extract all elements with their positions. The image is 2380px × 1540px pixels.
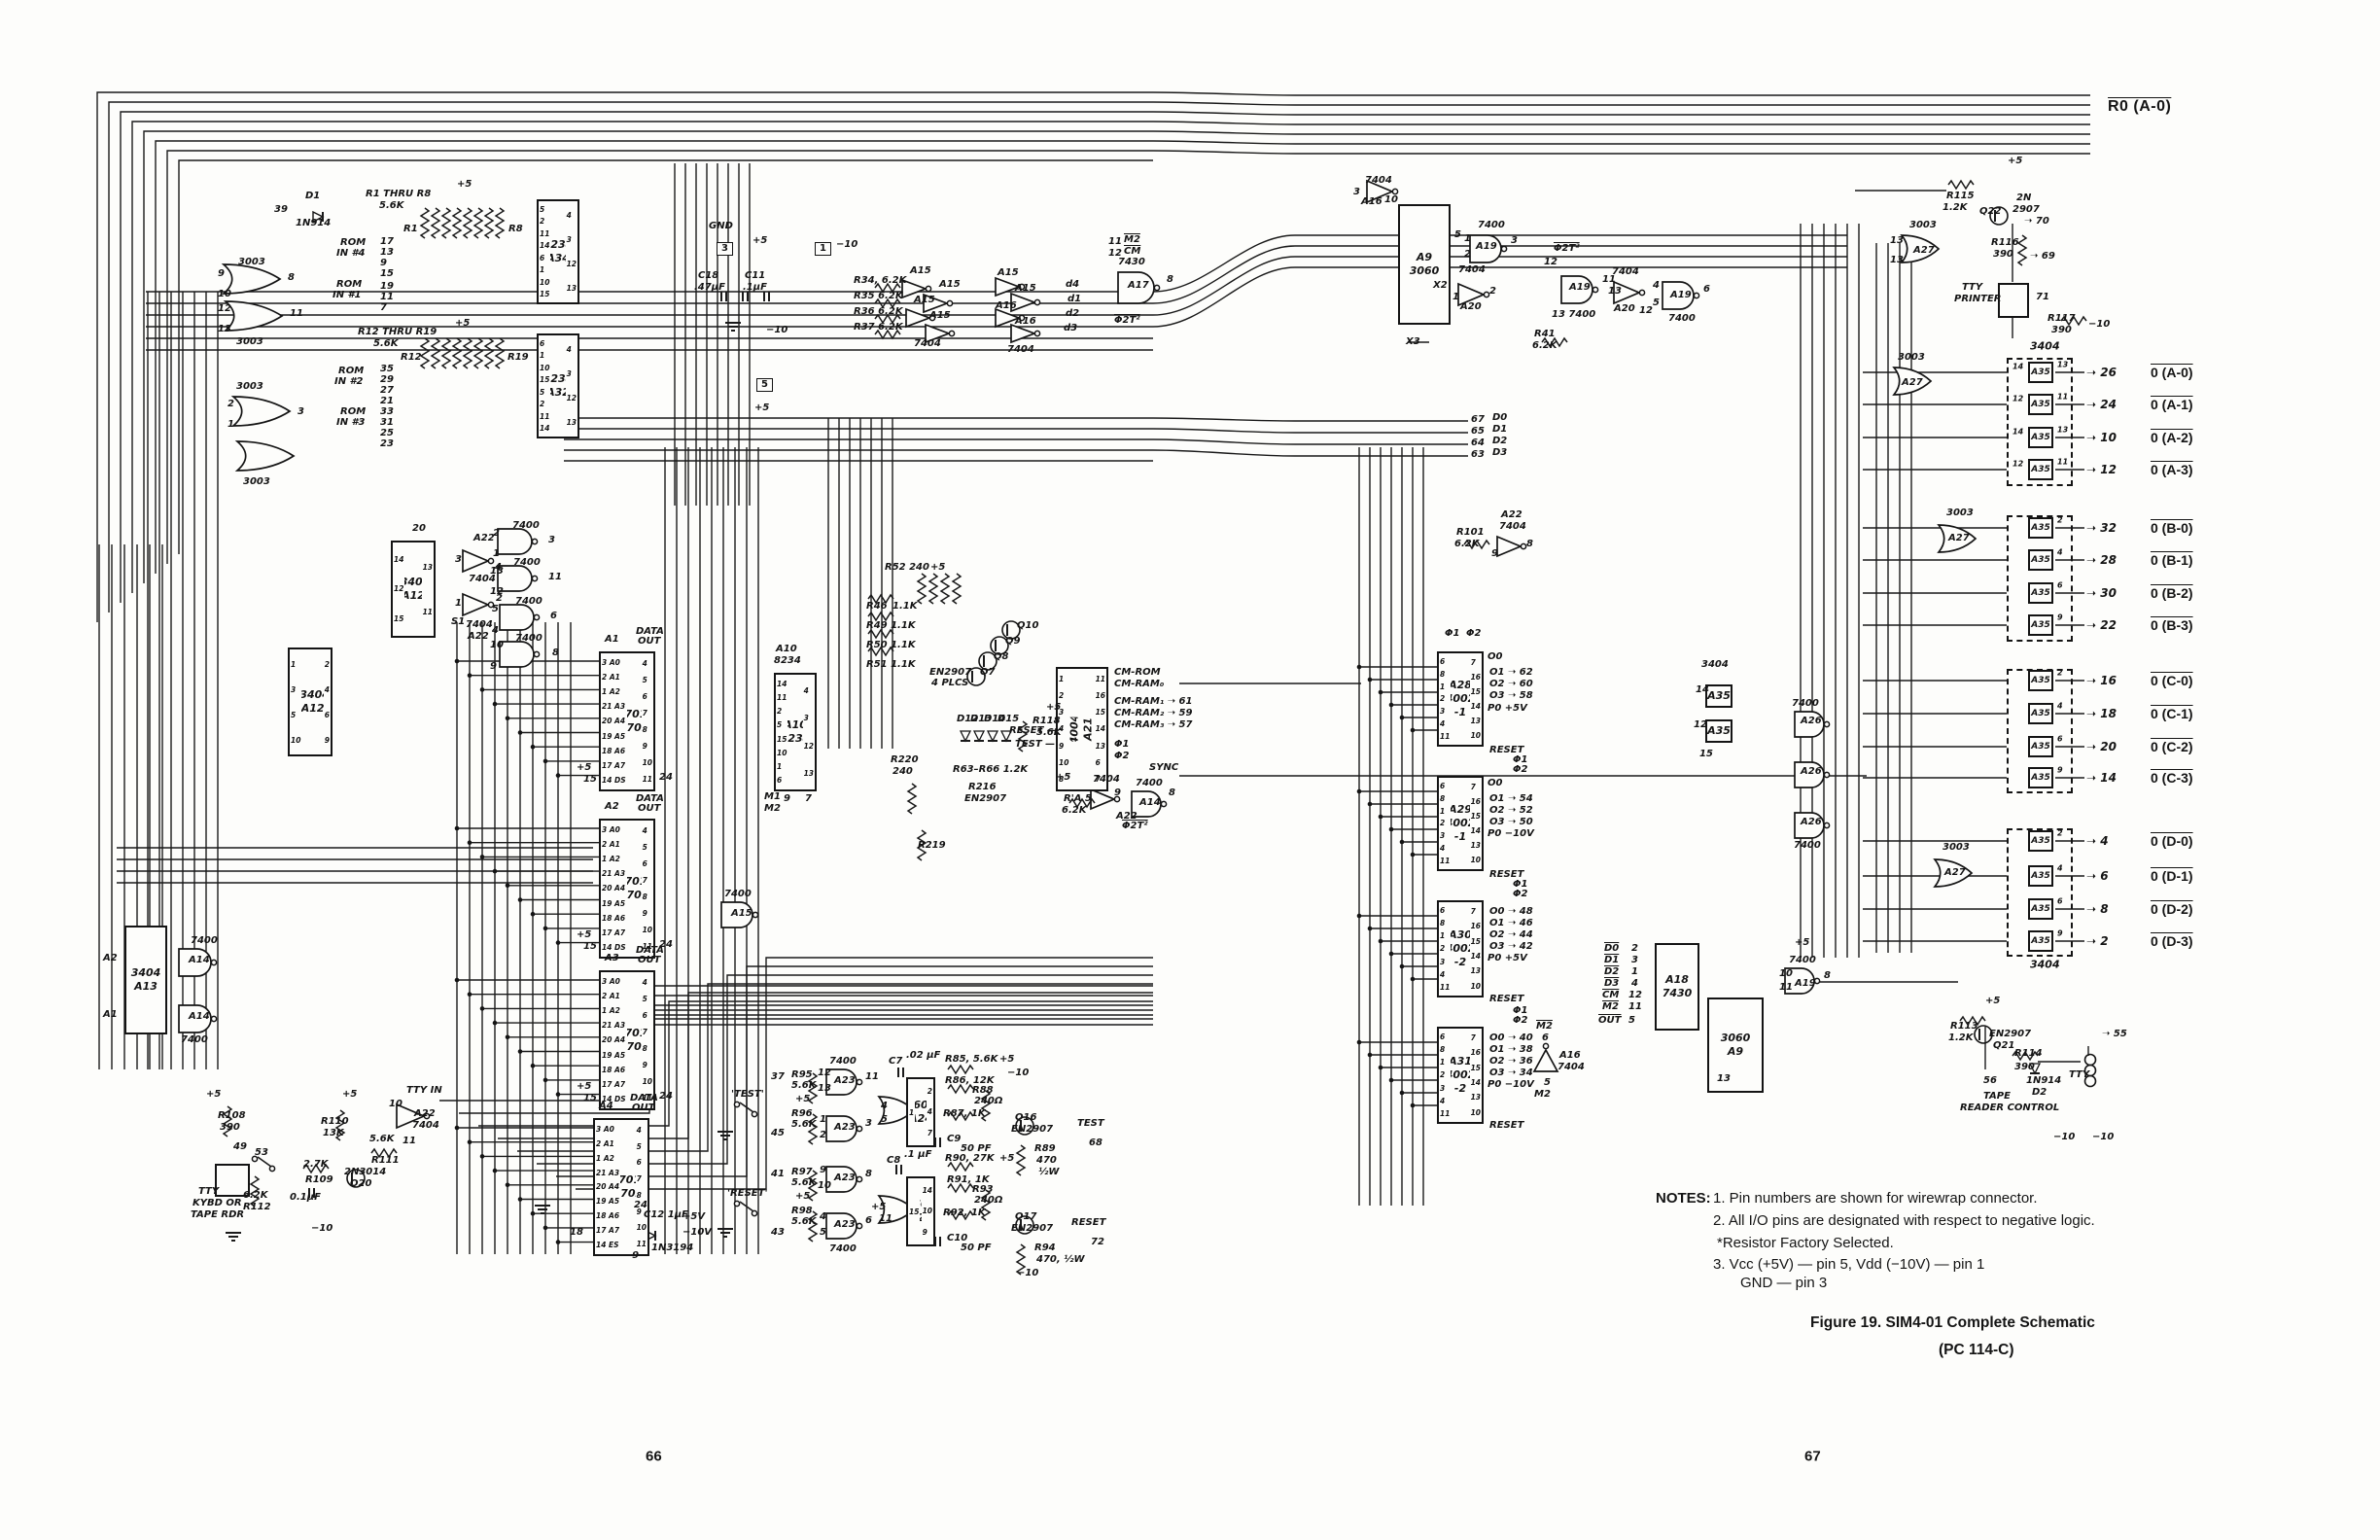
ic-designator: I3404A12 [301, 649, 323, 754]
ic-designator: I3404A12 [404, 542, 421, 636]
output-signal-label: 0 (A-3) [2151, 462, 2193, 477]
schematic-label: R114 [2014, 1049, 2043, 1059]
schematic-label: 12 [1544, 258, 1557, 267]
schematic-label: ➝ 55 [2102, 1030, 2127, 1039]
schematic-label: −10V [682, 1228, 712, 1238]
schematic-label: O2 ➝ 52 [1489, 806, 1533, 816]
schematic-label: −10 [2053, 1133, 2075, 1142]
schematic-label: 10 [818, 1181, 831, 1191]
schematic-label: −10 [836, 240, 857, 250]
buffer-output-pin: 6 [2057, 581, 2063, 590]
schematic-label: D2 [1604, 967, 1619, 977]
schematic-label: 3003 [238, 258, 265, 267]
schematic-label: 45 [771, 1129, 785, 1138]
schematic-label: d4 [1066, 280, 1079, 290]
schematic-label: R220 [891, 755, 919, 765]
schematic-label: A17 [1128, 281, 1149, 291]
buffer-cell: A35 [2028, 930, 2053, 952]
schematic-label: 11 [548, 573, 562, 582]
schematic-label: Φ2 [1513, 765, 1527, 775]
schematic-label: .47μF [694, 283, 725, 293]
schematic-label: 50 PF [961, 1243, 992, 1253]
buffer-input-pin: 12 [2012, 395, 2023, 403]
schematic-label: TTY [198, 1187, 219, 1197]
schematic-label: 39 [274, 205, 288, 215]
schematic-label: D2 [2032, 1088, 2047, 1098]
ic-a31-4002--2: 68123411A314002-271615141310 [1437, 1027, 1484, 1124]
schematic-label: 6.2K [243, 1191, 267, 1201]
buffer-cell: A35 [2028, 703, 2053, 724]
schematic-label: 35 [380, 365, 394, 374]
ic-designator: A304002-2 [1451, 902, 1469, 996]
schematic-label: O2 ➝ 44 [1489, 930, 1533, 940]
schematic-label: 390 [2014, 1063, 2035, 1072]
schematic-label: R37 6.2K [854, 323, 903, 332]
schematic-label: 24 [659, 1092, 673, 1102]
schematic-label: 15 [1699, 750, 1713, 759]
pin-numbers-right: 71615141310 [1470, 653, 1482, 745]
schematic-label: +5V [682, 1212, 705, 1222]
schematic-label: O2 ➝ 36 [1489, 1057, 1533, 1067]
note-line: *Resistor Factory Selected. [1717, 1235, 1894, 1251]
page-number-right: 67 [1804, 1449, 1821, 1465]
schematic-label: R46 [866, 602, 888, 612]
schematic-label: EN2907 [1989, 1030, 2031, 1039]
schematic-label: O3 ➝ 50 [1489, 818, 1533, 827]
pin-numbers-right: 431213 [566, 335, 577, 437]
schematic-label: 8 [1167, 275, 1173, 285]
schematic-label: 11 [290, 309, 303, 319]
connector-pin-label: ➝ 10 [2086, 431, 2117, 444]
schematic-label: IN #3 [336, 418, 366, 428]
schematic-label: 3 [1511, 236, 1518, 246]
schematic-label: 6 [865, 1216, 872, 1226]
schematic-label: O1 ➝ 54 [1489, 794, 1533, 804]
schematic-label: 5.6K [369, 1135, 394, 1144]
schematic-label: A15 [731, 909, 752, 919]
schematic-label: R1 THRU R8 [366, 190, 431, 199]
schematic-label: OUT [632, 1103, 654, 1113]
schematic-label: 9 [490, 662, 497, 672]
ic-designator: A93060 [1400, 206, 1449, 323]
schematic-label: Φ2T² [1114, 316, 1140, 326]
schematic-label: READER CONTROL [1960, 1103, 2059, 1113]
schematic-label: A20 [1460, 302, 1482, 312]
schematic-label: X2 [1433, 281, 1448, 291]
schematic-label: M2 [764, 804, 781, 814]
schematic-label: 7400 [829, 1244, 857, 1254]
schematic-label: 2.7K [303, 1160, 328, 1170]
output-signal-label: 0 (D-2) [2151, 901, 2193, 917]
schematic-label: RESET — [1009, 726, 1057, 736]
output-signal-label: 0 (D-3) [2151, 933, 2193, 949]
buffer-output-pin: 11 [2057, 458, 2068, 467]
ic-designator: 1701/1702 [620, 1120, 635, 1254]
schematic-label: O0 ➝ 48 [1489, 907, 1533, 917]
schematic-label: 9 [1114, 788, 1121, 798]
schematic-label: A16 [1559, 1051, 1581, 1061]
schematic-label: O1 ➝ 62 [1489, 668, 1533, 678]
ic-3060-a9: 3060A9 [1707, 997, 1764, 1093]
ic-8234-a32: 6110155211148234A32431213 [537, 333, 579, 438]
schematic-label: R12 THRU R19 [358, 328, 437, 337]
schematic-label: A26 [1801, 818, 1822, 827]
output-signal-label: 0 (A-0) [2151, 365, 2193, 380]
buffer-cell: A35 [2028, 582, 2053, 604]
schematic-label: 7400 [829, 1057, 857, 1067]
schematic-label: 7404 [1612, 267, 1639, 277]
schematic-label: −10 [1017, 1269, 1038, 1278]
schematic-label: +5 [754, 403, 769, 413]
schematic-label: 29 [380, 375, 394, 385]
schematic-label: R19 [507, 353, 529, 363]
schematic-label: O0 [1487, 779, 1502, 788]
buffer-output-pin: 13 [2057, 426, 2068, 435]
schematic-label: 7400 [515, 634, 542, 644]
schematic-label: 25 [380, 429, 394, 438]
ic-designator: 8234A32 [550, 335, 565, 437]
output-signal-label: 0 (B-0) [2151, 520, 2193, 536]
ic-designator: 1701/1702 [627, 821, 642, 957]
schematic-label: A19 [1795, 979, 1816, 989]
schematic-label: R51 1.1K [866, 660, 916, 670]
schematic-label: R52 240 [885, 563, 929, 573]
ic-1701-1702: 3 A02 A11 A221 A320 A419 A518 A617 A714 … [599, 651, 655, 791]
schematic-label: 6.2K [1532, 341, 1557, 351]
ic-a28-4002--1: 68123411A284002-171615141310 [1437, 651, 1484, 747]
schematic-label: CM-ROM [1114, 668, 1161, 678]
note-line: GND — pin 3 [1740, 1275, 1827, 1291]
schematic-label: 7404 [1557, 1063, 1585, 1072]
schematic-label: 12 [1694, 720, 1707, 730]
schematic-label: A22 [1501, 510, 1522, 520]
schematic-label: +5 [577, 1082, 591, 1092]
schematic-label: 5 [492, 605, 499, 614]
schematic-label: 1.2K [1948, 1033, 1973, 1043]
pin-numbers-left: 3 A02 A11 A221 A320 A419 A518 A617 A714 … [601, 653, 627, 789]
schematic-label: 2N [2016, 193, 2031, 203]
schematic-label: Q16 [1015, 1113, 1036, 1123]
schematic-label: 12 [818, 1068, 831, 1078]
schematic-label: R92, 1K [943, 1208, 986, 1218]
schematic-label: 5 [881, 1115, 888, 1125]
schematic-label: A14 [189, 956, 210, 965]
pin-numbers-left: 15 [908, 1178, 920, 1244]
schematic-label: 2 [820, 1131, 826, 1140]
schematic-label: d2 [1066, 309, 1079, 319]
pin-numbers-right: 71615141310 [1470, 902, 1482, 996]
schematic-label: +5 [1056, 773, 1070, 783]
schematic-label: 33 [380, 407, 394, 417]
connector-pin-label: ➝ 32 [2086, 521, 2117, 535]
buffer-output-pin: 4 [2057, 864, 2063, 873]
schematic-label: 3 [1631, 956, 1638, 965]
schematic-label: Q7 [980, 668, 995, 678]
schematic-label: A15 [910, 266, 931, 276]
schematic-label: A27 [1944, 868, 1966, 878]
schematic-label: +5 [930, 563, 945, 573]
schematic-label: 65 [1471, 427, 1485, 437]
buffer-cell: A35 [2028, 898, 2053, 920]
buffer-cell: A35 [2028, 865, 2053, 887]
schematic-label: A22 [473, 534, 495, 543]
schematic-label: 470, ½W [1036, 1255, 1085, 1265]
schematic-label: D2 [1492, 437, 1507, 446]
pin-numbers-right: 4567891011 [642, 972, 653, 1108]
schematic-label: 7404 [1499, 522, 1526, 532]
connector-pin-label: ➝ 4 [2086, 834, 2109, 848]
schematic-label: +5 [455, 319, 470, 329]
schematic-label: R117 [2047, 314, 2076, 324]
schematic-label: 5.6K [791, 1081, 816, 1091]
connector-pin-label: ➝ 8 [2086, 902, 2109, 916]
schematic-label: 11 [1628, 1002, 1642, 1012]
pin-numbers-right: 71615141310 [1470, 778, 1482, 869]
schematic-label: 240Ω [974, 1196, 1002, 1206]
schematic-label: 9 [820, 1166, 826, 1175]
schematic-label: Q20 [350, 1179, 371, 1189]
ic-a35: A35 [1705, 719, 1732, 743]
schematic-label: 49 [233, 1142, 247, 1152]
schematic-label: ➝ 69 [2030, 252, 2055, 262]
schematic-label: 7400 [512, 521, 540, 531]
schematic-label: OUT [638, 956, 660, 965]
schematic-label: R111 [371, 1156, 400, 1166]
schematic-label: R50 1.1K [866, 641, 916, 650]
schematic-label: 7 [805, 794, 812, 804]
schematic-label: R98 [791, 1207, 813, 1216]
schematic-label: EN2907 [1011, 1224, 1053, 1234]
schematic-label: 17 [380, 237, 394, 247]
figure-caption-title: Figure 19. SIM4-01 Complete Schematic [1810, 1314, 2095, 1332]
ic-a9-3060: A93060 [1398, 204, 1451, 325]
schematic-label: 5 [1544, 1078, 1551, 1088]
buffer-cell: A35 [2028, 670, 2053, 691]
schematic-label: 10 [218, 290, 231, 299]
schematic-label: R88 [972, 1086, 994, 1096]
schematic-label: 19 [380, 282, 394, 292]
buffer-group-part-label: 3404 [2030, 960, 2060, 970]
notes-heading: NOTES: [1656, 1190, 1711, 1207]
schematic-label: Φ2T² [1554, 244, 1580, 254]
schematic-label: .02 μF [906, 1051, 940, 1061]
schematic-label: A23 [834, 1076, 856, 1086]
connector-pin-label: ➝ 6 [2086, 869, 2109, 883]
pin-numbers-right: 247 [927, 1079, 933, 1145]
schematic-label: 67 [1471, 415, 1485, 425]
schematic-label: D15 [997, 715, 1019, 724]
schematic-label: 10 [490, 641, 504, 650]
schematic-label: 3003 [1898, 353, 1925, 363]
schematic-label: 3003 [1946, 508, 1974, 518]
schematic-label: R110 [321, 1117, 349, 1127]
schematic-label: A19 [1670, 291, 1692, 300]
output-signal-label: 0 (C-2) [2151, 739, 2193, 754]
schematic-label: D0 [1604, 944, 1619, 954]
schematic-label: A15 [929, 311, 951, 321]
buffer-cell: A35 [2028, 736, 2053, 757]
schematic-label: O1 ➝ 38 [1489, 1045, 1533, 1055]
schematic-label: 2 [1464, 250, 1471, 260]
schematic-label: 8 [552, 648, 559, 658]
schematic-label: A22 [468, 632, 489, 642]
schematic-label: ROM [340, 238, 366, 248]
pin-numbers-right: 4567891011 [642, 653, 653, 789]
schematic-label: EN2907 [964, 794, 1006, 804]
ic-9602-a24: 19602A24247 [906, 1077, 935, 1147]
pin-numbers-left: 521114611015 [539, 201, 550, 302]
schematic-label: 3003 [236, 382, 263, 392]
schematic-label: 4 [1653, 281, 1660, 291]
schematic-label: 8 [1526, 540, 1533, 549]
schematic-label: O3 ➝ 42 [1489, 942, 1533, 952]
schematic-label: OUT [1598, 1016, 1621, 1026]
schematic-label: 7400 [1668, 314, 1696, 324]
pin-numbers-right: 4567891011 [636, 1120, 647, 1254]
schematic-label: 7400 [1136, 779, 1163, 788]
pin-numbers-right: 2469 [324, 649, 331, 754]
schematic-label: A27 [1948, 534, 1970, 543]
schematic-label: 2N3014 [344, 1168, 386, 1177]
schematic-label: 7404 [466, 620, 493, 630]
schematic-label: 'TEST' [731, 1090, 764, 1100]
connector-pin-label: ➝ 24 [2086, 398, 2117, 411]
schematic-label: 53 [255, 1148, 268, 1158]
schematic-label: 18 [570, 1228, 583, 1238]
output-signal-label: 0 (C-1) [2151, 706, 2193, 721]
schematic-label: A16 [996, 301, 1017, 311]
schematic-label: +5 [1985, 997, 2000, 1006]
schematic-label: 10 [1384, 195, 1398, 205]
schematic-label: 11 [402, 1137, 416, 1146]
schematic-label: A15 [1015, 284, 1036, 294]
buffer-input-pin: 14 [2012, 428, 2023, 437]
schematic-label: R95 [791, 1070, 813, 1080]
schematic-label: O2 ➝ 60 [1489, 680, 1533, 689]
buffer-cell: A35 [2028, 427, 2053, 448]
schematic-label: IN #4 [336, 249, 366, 259]
pin-numbers-left: 141125151016 [776, 675, 787, 789]
schematic-page: NOTES: 1. Pin numbers are shown for wire… [0, 0, 2380, 1540]
schematic-label: R96 [791, 1109, 813, 1119]
schematic-label: 12 [490, 587, 504, 597]
buffer-cell: A35 [2028, 830, 2053, 852]
schematic-label: R216 [968, 783, 997, 792]
ic-3404-a13: 3404A13 [124, 926, 167, 1034]
schematic-label: IN #1 [332, 291, 362, 300]
schematic-label: A20 [1614, 304, 1635, 314]
schematic-label: 8 [1169, 788, 1175, 798]
buffer-cell: A35 [2028, 362, 2053, 383]
schematic-label: C18 [698, 271, 718, 281]
schematic-label: 43 [771, 1228, 785, 1238]
schematic-label: RESET [1489, 1121, 1523, 1131]
schematic-label: TTY [2069, 1070, 2089, 1080]
schematic-label: Q9 [1005, 637, 1020, 647]
page-number-left: 66 [646, 1449, 662, 1465]
ic-a30-4002--2: 68123411A304002-271615141310 [1437, 900, 1484, 997]
schematic-label: A23 [834, 1220, 856, 1230]
pin-numbers-left: 141215 [393, 542, 404, 636]
schematic-label: A15 [997, 268, 1019, 278]
output-signal-label: 0 (C-3) [2151, 770, 2193, 786]
schematic-label: ½W [1038, 1168, 1059, 1177]
schematic-label: Φ1 [1114, 740, 1129, 750]
schematic-label: C8 [887, 1156, 900, 1166]
schematic-label: A3 [605, 954, 619, 963]
schematic-label: 11 [1108, 237, 1122, 247]
ic-1701-1702: 3 A02 A11 A221 A320 A419 A518 A617 A714 … [599, 819, 655, 959]
schematic-label: C11 [745, 271, 765, 281]
schematic-label: D1 [1604, 956, 1619, 965]
ic-8234-a34: 5211146110158234A34431213 [537, 199, 579, 304]
buffer-output-pin: 2 [2057, 829, 2063, 838]
schematic-label: D0 [1492, 413, 1507, 423]
schematic-label: 390 [220, 1123, 240, 1133]
schematic-label: 14 [1696, 685, 1709, 695]
schematic-label: 9 [380, 259, 387, 268]
schematic-label: 7400 [724, 890, 752, 899]
schematic-label: R87, 1K [943, 1109, 986, 1119]
schematic-label: A4 [599, 1102, 613, 1111]
schematic-label: A22 [414, 1109, 436, 1119]
ic-a18-7430: A187430 [1655, 943, 1699, 1031]
schematic-label: 11 [865, 1072, 879, 1082]
schematic-label: O3 ➝ 34 [1489, 1068, 1533, 1078]
schematic-label: 6 [1542, 1033, 1549, 1043]
buffer-cell: A35 [2028, 767, 2053, 788]
schematic-label: O3 ➝ 58 [1489, 691, 1533, 701]
ic-9602-a24: 159602A2414109 [906, 1176, 935, 1246]
schematic-label: Φ1 [1445, 629, 1459, 639]
schematic-label: 37 [771, 1072, 785, 1082]
connector-pin-label: ➝ 28 [2086, 553, 2117, 567]
schematic-label: 1 [227, 420, 234, 430]
schematic-label: C12 1μF [644, 1210, 688, 1220]
schematic-label: +5 [342, 1090, 357, 1100]
buffer-input-pin: 12 [2012, 460, 2023, 469]
buffer-cell: A35 [2028, 549, 2053, 571]
note-line: 3. Vcc (+5V) — pin 5, Vdd (−10V) — pin 1 [1713, 1256, 1984, 1273]
output-signal-label: 0 (D-1) [2151, 868, 2193, 884]
schematic-label: 7400 [1792, 699, 1819, 709]
schematic-label: R94 [1034, 1243, 1056, 1253]
schematic-label: 11 [380, 293, 394, 302]
ic-designator: A35 [1707, 721, 1731, 741]
schematic-label: d3 [1064, 324, 1077, 333]
schematic-label: 7404 [1093, 775, 1120, 785]
connector-pin-label: ➝ 14 [2086, 771, 2117, 785]
schematic-label: R115 [1946, 192, 1975, 201]
schematic-label: R90, 27K [945, 1154, 995, 1164]
ic-a35: A35 [1705, 684, 1732, 708]
schematic-label: A2 [605, 802, 619, 812]
schematic-label: −10 [766, 326, 787, 335]
schematic-label: A26 [1801, 767, 1822, 777]
pin-numbers-left: 68123411 [1439, 653, 1451, 745]
schematic-label: 10 [389, 1100, 402, 1109]
schematic-label: 24 [659, 773, 673, 783]
schematic-label: 13K [323, 1129, 344, 1138]
schematic-label: 1N3194 [651, 1243, 693, 1253]
schematic-label: 6.2K [1454, 540, 1479, 549]
pin-numbers-left: 68123411 [1439, 902, 1451, 996]
schematic-label: 'RESET' [727, 1189, 768, 1199]
pin-numbers-right: 71615141310 [1470, 1029, 1482, 1122]
schematic-label: −10 [1007, 1068, 1029, 1078]
schematic-label: 5 [1653, 298, 1660, 308]
schematic-label: 7400 [1478, 221, 1505, 230]
